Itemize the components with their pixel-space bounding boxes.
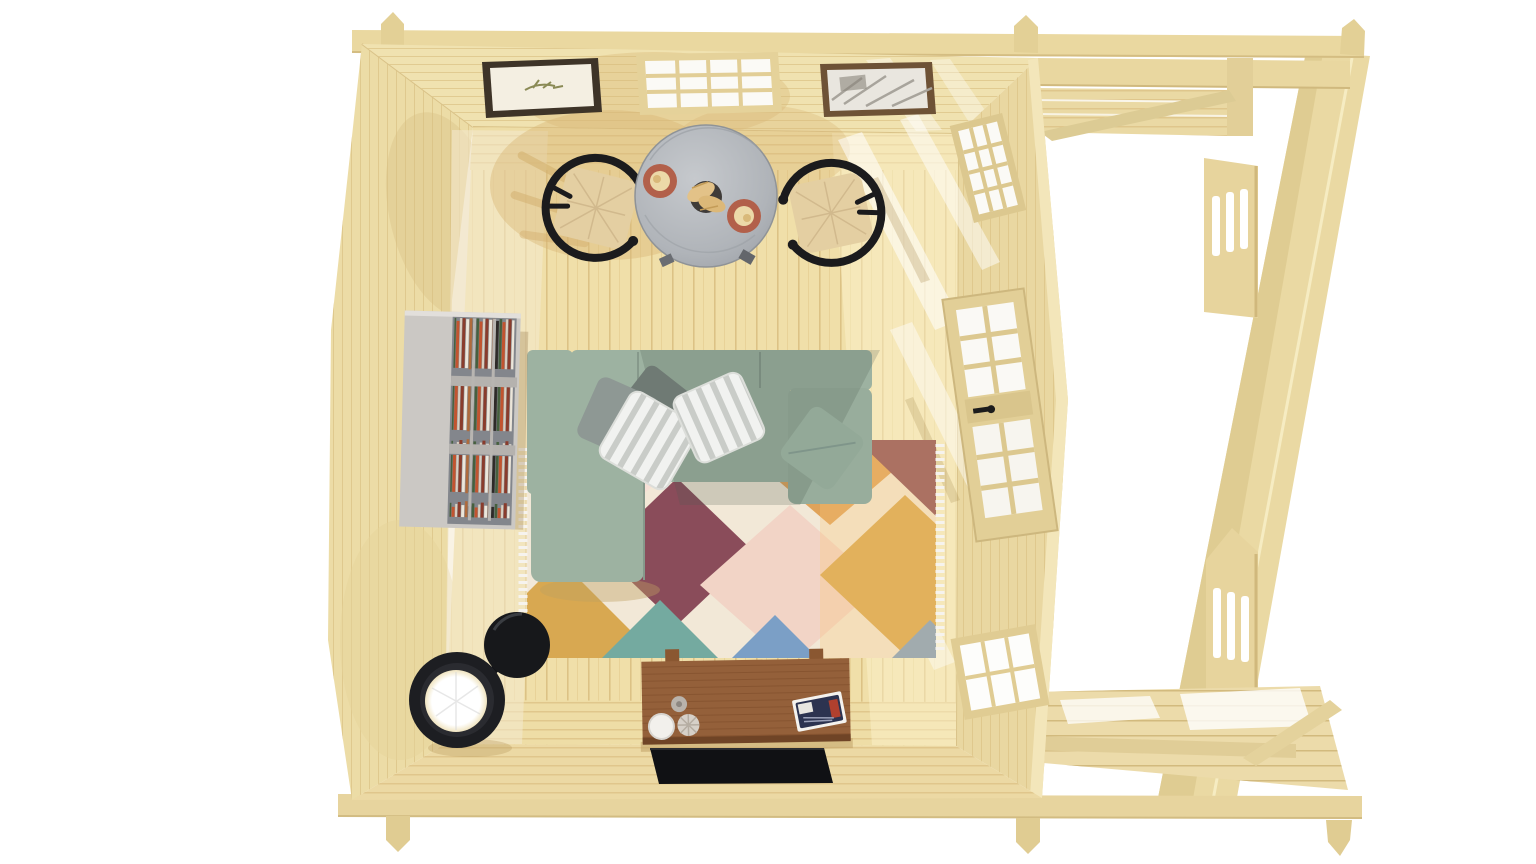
white-mug — [649, 714, 674, 739]
grid-window-top — [636, 52, 782, 115]
pergola-bottom-beam — [338, 794, 1362, 856]
shelf-divider — [449, 444, 515, 456]
round-dining-table — [635, 125, 777, 267]
post-cap-bottom-middle — [1016, 818, 1040, 854]
railing-slit — [1227, 592, 1235, 660]
railing-panel-lower — [1206, 528, 1258, 692]
book-row — [449, 455, 511, 519]
post-cap-bottom-left — [386, 816, 410, 852]
picture-frame-right — [820, 62, 936, 117]
book-row — [453, 318, 514, 378]
picture-frame-left — [482, 58, 602, 118]
book-row — [451, 386, 512, 446]
right-wall-lower-window — [951, 624, 1050, 720]
railing-slit — [1226, 192, 1234, 252]
railing-panel-upper — [1204, 158, 1258, 318]
shelf-divider — [451, 376, 517, 388]
post-cap-middle — [1014, 15, 1038, 53]
lamp-top-disc — [484, 612, 550, 678]
tv-flatscreen — [650, 748, 833, 784]
post-cap-bottom-right — [1326, 820, 1352, 856]
cabin-overhead-render — [0, 0, 1536, 864]
bookshelf — [399, 311, 529, 530]
plate-right — [727, 199, 761, 233]
post-cap-right — [1340, 19, 1365, 56]
media-sideboard — [639, 646, 853, 752]
plate-left — [643, 164, 677, 198]
railing-slit — [1241, 596, 1249, 662]
post-cap-left — [381, 12, 404, 50]
railing-slit — [1213, 588, 1221, 658]
railing-slit — [1240, 189, 1248, 249]
railing-slit — [1212, 196, 1220, 256]
porch-deck — [1028, 686, 1348, 790]
